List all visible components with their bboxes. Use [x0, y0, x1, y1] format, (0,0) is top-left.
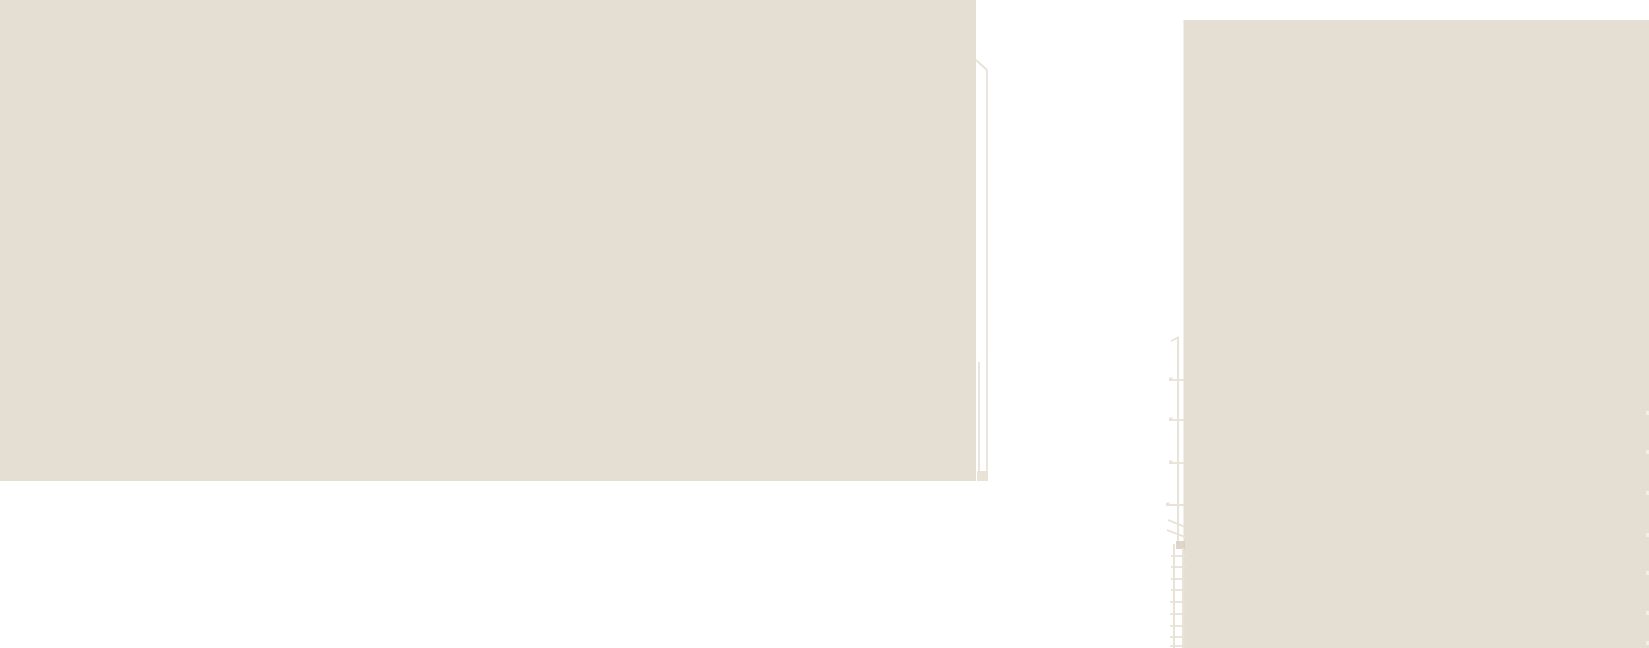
- photo-scene: [0, 0, 1649, 648]
- ladder-landing-blob: [1176, 541, 1185, 549]
- rung-bracket: [1169, 378, 1173, 382]
- rung-bracket: [1169, 461, 1173, 465]
- rung-bracket: [1166, 503, 1170, 507]
- photo-canvas: [0, 0, 1649, 648]
- right-building-facade: [1184, 20, 1649, 648]
- rung-bracket: [1169, 418, 1173, 422]
- left-building-facade: [0, 0, 976, 481]
- corner-base-notch: [977, 471, 988, 481]
